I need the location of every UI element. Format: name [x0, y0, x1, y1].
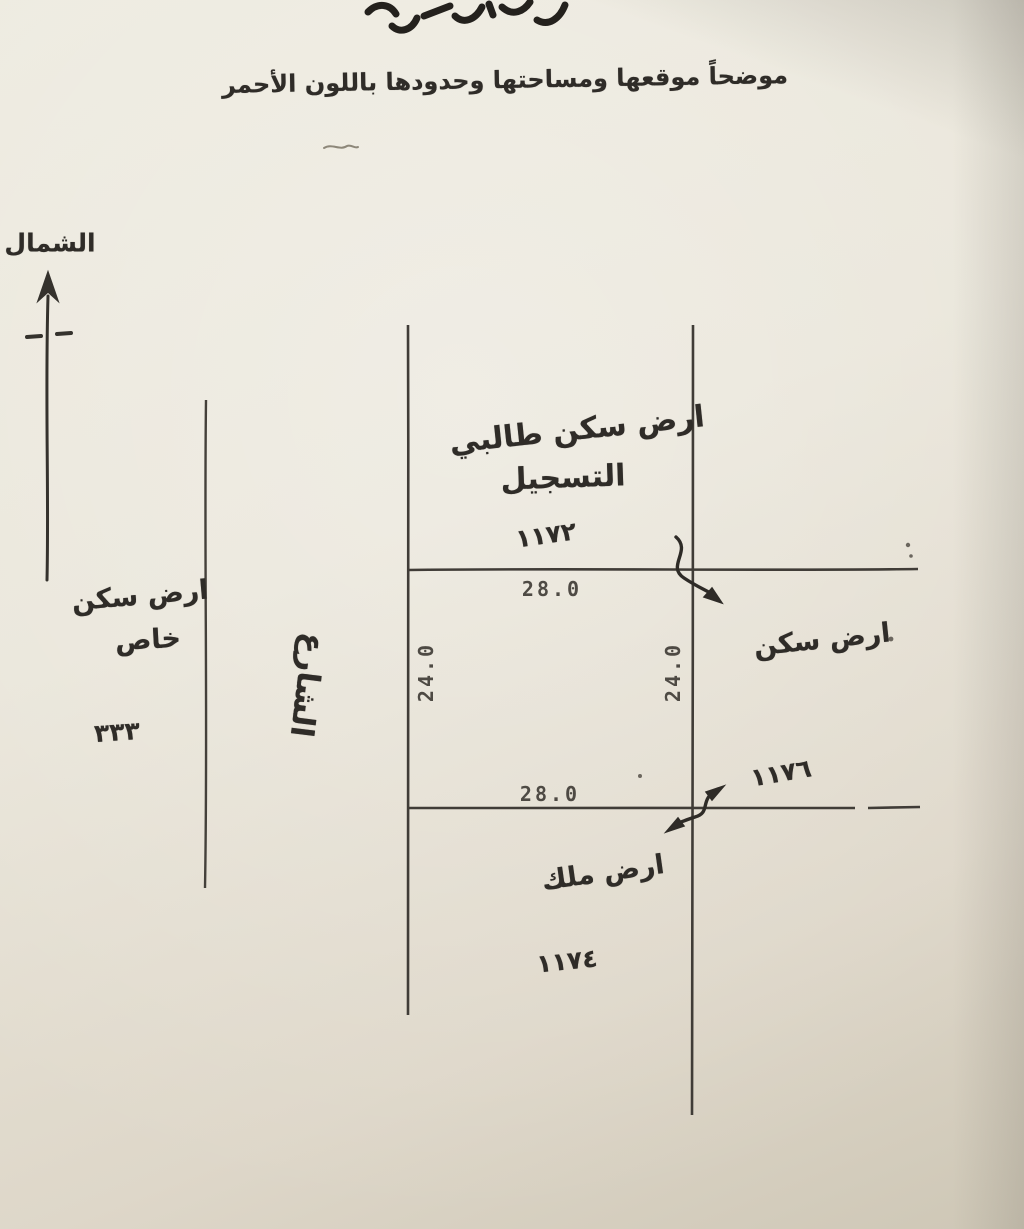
north-plot-label-line2: التسجيل: [500, 458, 626, 497]
faint-scribble: [324, 146, 358, 148]
dimension-bottom: 28.0: [520, 782, 580, 806]
west-plot-number: ٣٣٣: [93, 716, 141, 748]
west-land-label-line2: خاص: [114, 623, 181, 657]
scanned-survey-page: موضحاً موقعها ومساحتها وحدودها باللون ال…: [0, 0, 1024, 1229]
dimension-left: 24.0: [414, 642, 438, 702]
cutoff-handwriting-fragment: [368, 2, 565, 30]
compass-label: الشمال: [4, 229, 95, 258]
dimension-right: 24.0: [661, 642, 685, 702]
west-boundary-line: [205, 400, 206, 888]
north-arrow: [27, 272, 71, 580]
survey-drawing: [0, 0, 1024, 1229]
dimension-top: 28.0: [522, 577, 582, 601]
